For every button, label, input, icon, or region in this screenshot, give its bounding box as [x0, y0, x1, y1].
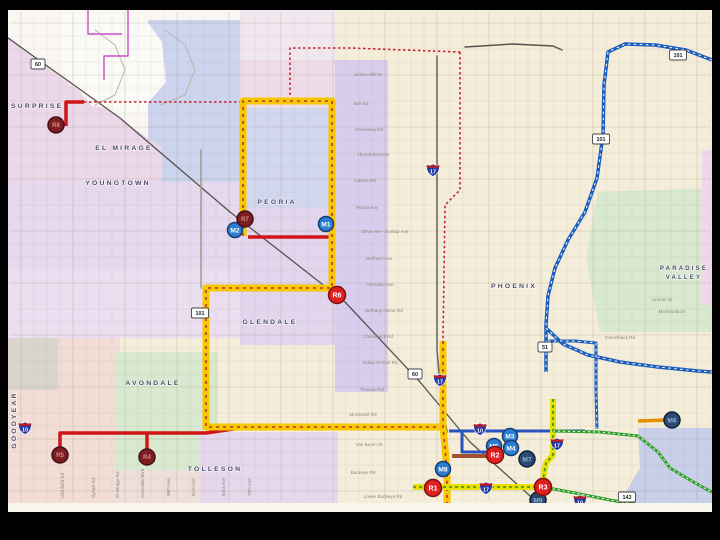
city-label-valley: VALLEY [666, 275, 702, 281]
marker-label: R5 [56, 453, 64, 459]
marker-label: M2 [230, 227, 239, 234]
marker-m4: M4 [504, 441, 519, 456]
marker-label: R1 [429, 486, 438, 493]
street-label-litchfield-rd: Litchfield Rd [60, 472, 65, 498]
shield-sr101: 101 [670, 50, 687, 60]
street-label-avondale-blvd: Avondale Blvd [140, 468, 145, 498]
region-peoria-periwinkle [240, 108, 335, 208]
street-label-peoria-ave: Peoria Ave [356, 205, 379, 210]
street-label-camelback-rd: Camelback Rd [363, 334, 394, 339]
shield-sr60: 60 [408, 369, 422, 379]
shield-number: 143 [623, 495, 632, 501]
shield-sr60: 60 [31, 59, 45, 69]
marker-label: R3 [539, 485, 548, 492]
city-label-peoria: PEORIA [257, 199, 296, 206]
slide-background: 17171717101010601016051101101143SURPRISE… [0, 0, 720, 540]
marker-r2: R2 [487, 447, 504, 464]
region-north-pale [240, 10, 336, 60]
street-label-indian-school-rd: Indian School Rd [363, 360, 398, 365]
marker-m6: M6 [664, 412, 680, 428]
street-label-el-mirage-rd: El Mirage Rd [115, 471, 120, 498]
shield-number: 10 [477, 429, 483, 435]
city-label-glendale: GLENDALE [243, 319, 298, 326]
street-label-cactus-rd: Cactus Rd [354, 178, 376, 183]
shield-number: 17 [437, 380, 443, 386]
marker-label: R6 [333, 293, 342, 300]
marker-label: M3 [505, 433, 514, 440]
shield-sr101: 101 [593, 134, 610, 144]
marker-label: R4 [143, 455, 151, 461]
street-label-union-hills-dr: Union Hills Dr [354, 72, 383, 77]
marker-label: M7 [522, 456, 531, 463]
street-label-van-buren-st: Van Buren St [356, 442, 384, 447]
shield-number: 17 [554, 444, 560, 450]
shield-number: 60 [412, 372, 418, 378]
street-label-91st-ave: 91st Ave [191, 478, 196, 496]
shield-number: 101 [196, 311, 205, 317]
marker-label: R2 [491, 453, 500, 460]
street-label-glendale-ave: Glendale Ave [366, 282, 394, 287]
city-label-avondale: AVONDALE [125, 380, 180, 387]
marker-r3: R3 [535, 479, 552, 496]
marker-m8: M8 [436, 462, 451, 477]
marker-r7: R7 [237, 211, 253, 227]
marker-label: M8 [438, 466, 447, 473]
marker-label: M1 [321, 221, 330, 228]
street-label-thomas-rd: Thomas Rd [360, 387, 384, 392]
shield-number: 10 [22, 428, 28, 434]
shield-number: 101 [597, 137, 606, 143]
street-label-olive-ave-dunlap-ave: Olive Ave - Dunlap Ave [362, 229, 409, 234]
shield-number: 101 [674, 53, 683, 59]
marker-label: M4 [506, 445, 515, 452]
region-purple-strip [335, 60, 388, 392]
city-label-phoenix: PHOENIX [491, 283, 537, 290]
shield-number: 17 [430, 170, 436, 176]
street-label-mcdowell-rd: McDowell Rd [349, 412, 377, 417]
marker-label: R8 [52, 123, 60, 129]
street-label-greenway-rd: Greenway Rd [355, 127, 384, 132]
shield-sr51: 51 [538, 342, 552, 352]
region-below-green-pink [115, 470, 200, 505]
marker-r5: R5 [52, 447, 68, 463]
street-label-83rd-ave: 83rd Ave [221, 478, 226, 496]
street-label-75th-ave: 75th Ave [247, 478, 252, 496]
marker-label: R7 [241, 217, 249, 223]
city-label-surprise: SURPRISE [11, 103, 63, 110]
city-label-youngtown: YOUNGTOWN [85, 180, 150, 187]
marker-r1: R1 [425, 480, 442, 497]
shield-number: 17 [483, 488, 489, 494]
shield-number: 60 [35, 62, 41, 68]
shield-number: 51 [542, 345, 548, 351]
street-label-bell-rd: Bell Rd [354, 101, 369, 106]
shield-sr101: 101 [192, 308, 209, 318]
marker-r8: R8 [48, 117, 64, 133]
marker-label: M6 [667, 417, 676, 424]
region-paradise-valley-green [586, 188, 712, 332]
phoenix-routes-map: 17171717101010601016051101101143SURPRISE… [0, 0, 720, 540]
street-label-99th-ave: 99th Ave [166, 478, 171, 496]
marker-m7: M7 [519, 451, 535, 467]
map-footer-strip [8, 503, 712, 512]
street-label-camelback-rd: Camelback Rd [605, 335, 636, 340]
region-right-pink-strip [702, 150, 712, 305]
marker-m1: M1 [319, 217, 334, 232]
marker-r4: R4 [139, 449, 155, 465]
street-label-northern-ave: Northern Ave [366, 256, 393, 261]
region-youngtown-lavender [8, 182, 240, 268]
city-label-paradise: PARADISE [660, 266, 708, 272]
marker-r6: R6 [329, 287, 346, 304]
city-label-tolleson: TOLLESON [188, 466, 242, 473]
region-gray-patch [8, 338, 58, 390]
shield-sr143: 143 [619, 492, 636, 502]
street-label-buckeye-rd: Buckeye Rd [351, 470, 376, 475]
city-label-el-mirage: EL MIRAGE [95, 145, 152, 152]
city-label-goodyear: GOODYEAR [11, 391, 18, 448]
street-label-bethany-home-rd: Bethany Home Rd [365, 308, 403, 313]
street-label-lower-buckeye-rd: Lower Buckeye Rd [364, 494, 403, 499]
street-label-thunderbird-rd: Thunderbird Rd [357, 152, 389, 157]
street-label-mcdonald-dr: McDonald Dr [659, 309, 686, 314]
street-label-dysart-rd: Dysart Rd [91, 477, 96, 498]
street-label-lincoln-dr: Lincoln Dr [652, 297, 673, 302]
